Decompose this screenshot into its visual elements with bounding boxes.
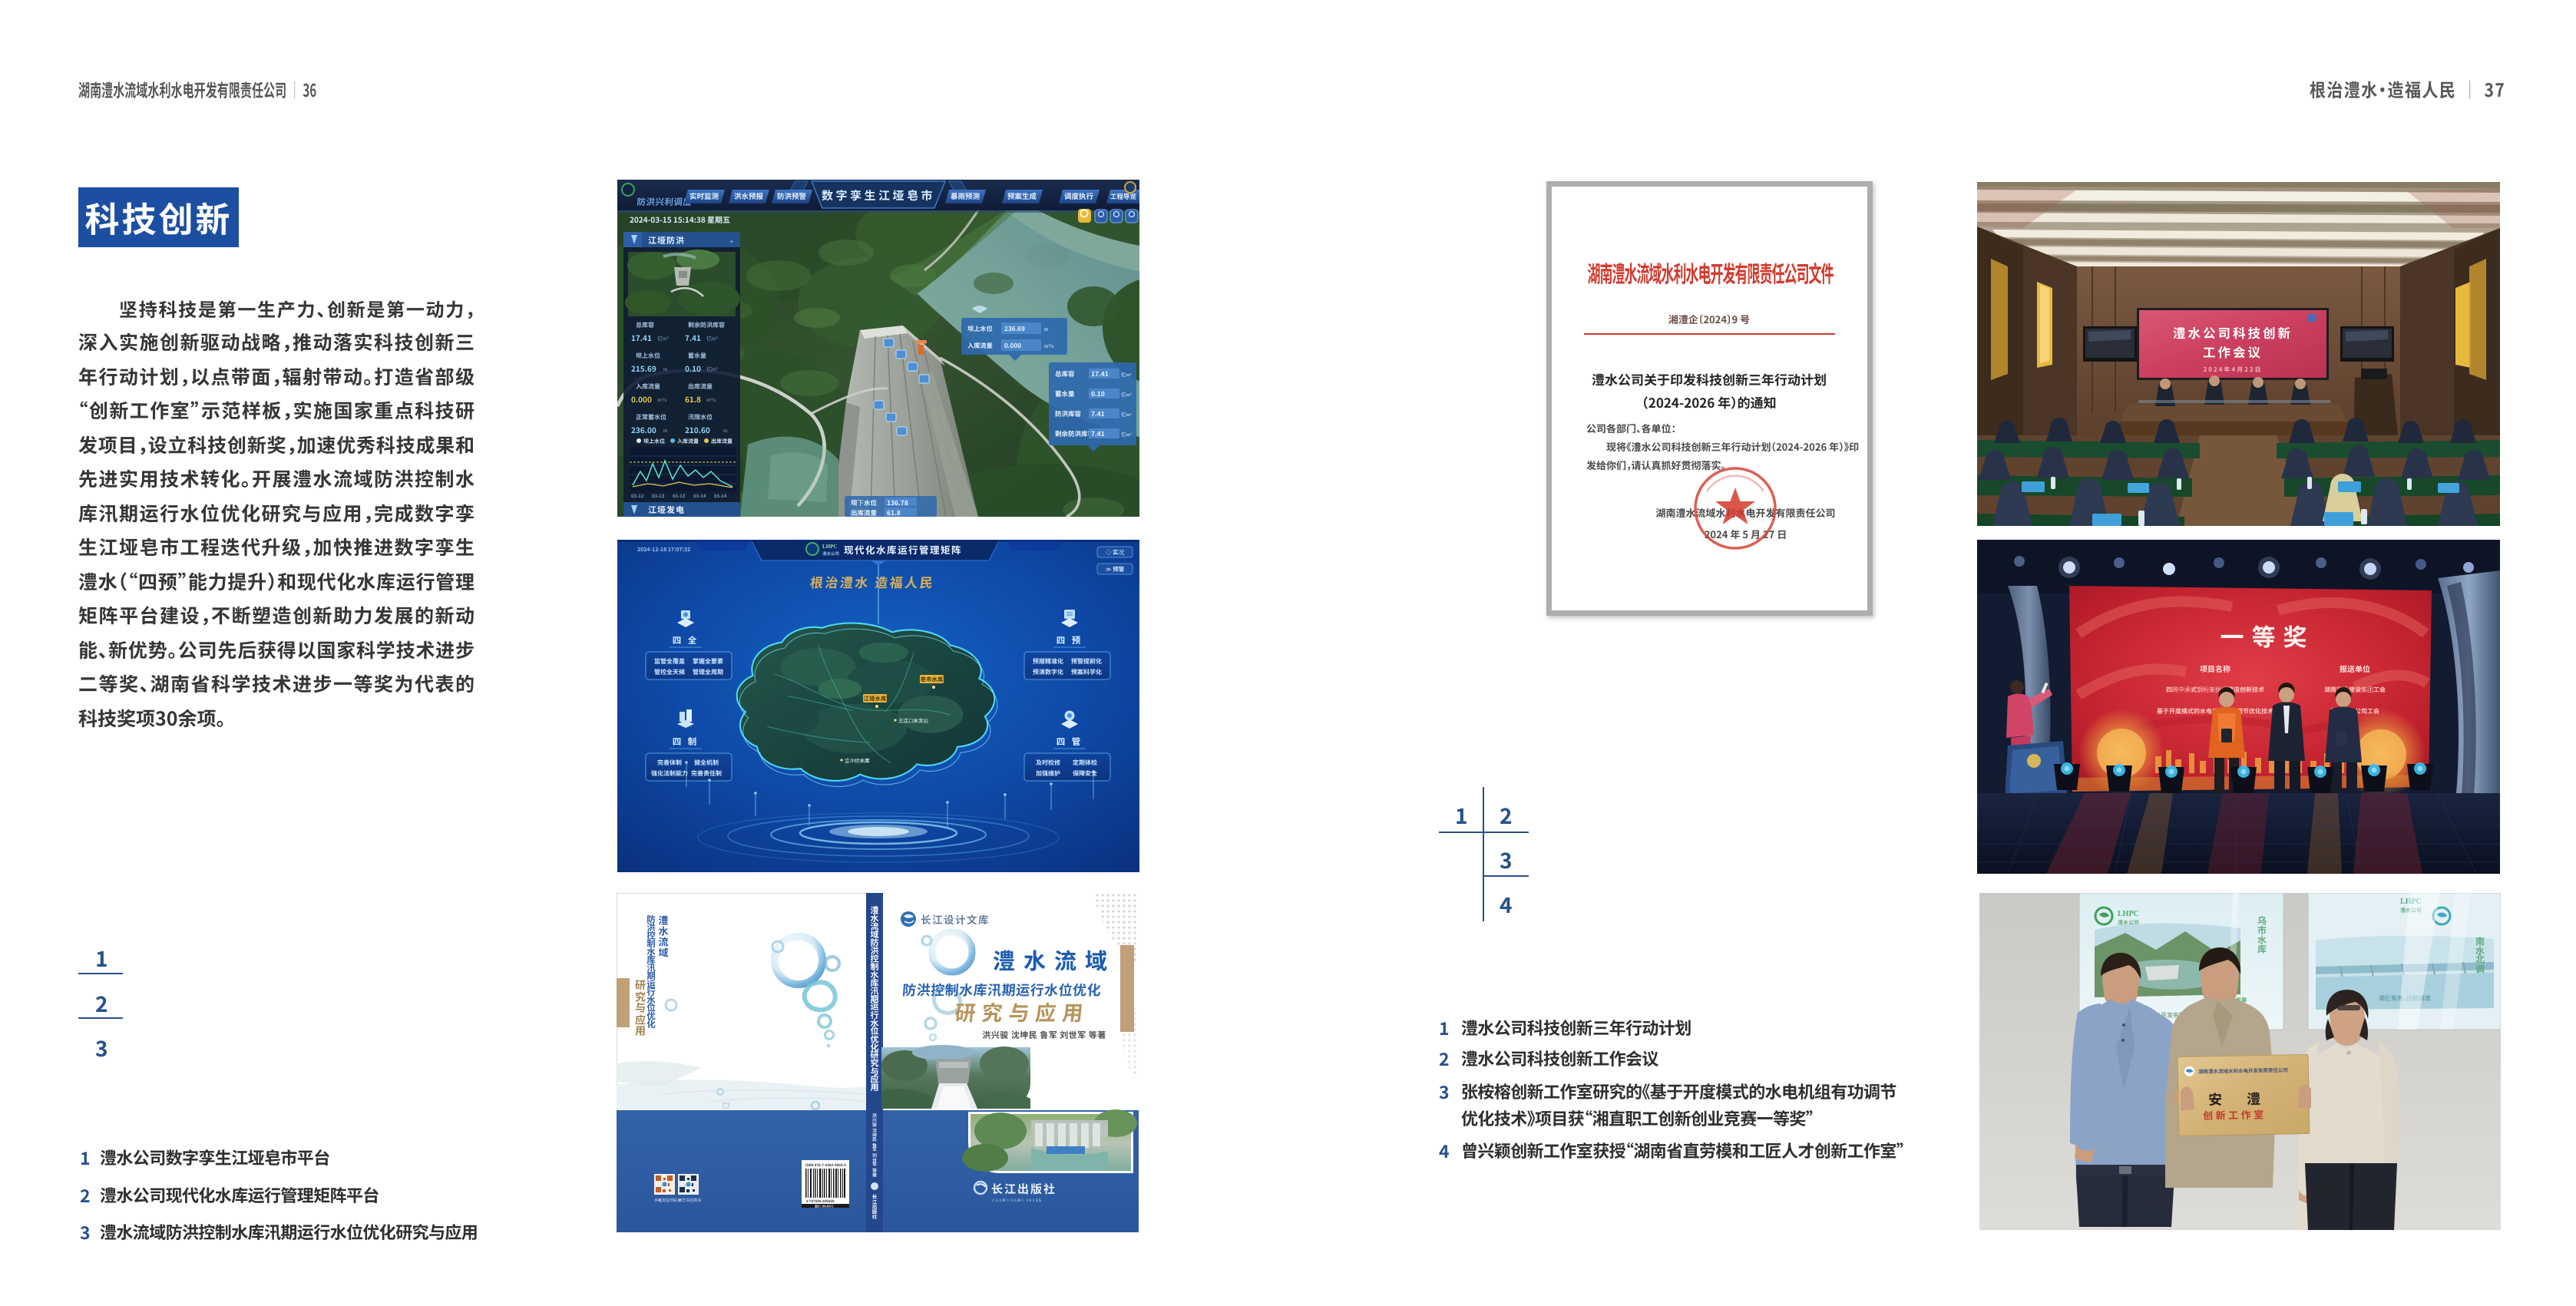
svg-text:监管全覆盖: 监管全覆盖 xyxy=(654,657,685,666)
svg-text:m: m xyxy=(723,427,728,435)
svg-text:215.69: 215.69 xyxy=(631,362,656,374)
svg-text:手机淘宝扫码 新华书店购书: 手机淘宝扫码 新华书店购书 xyxy=(654,1198,701,1203)
svg-text:出库流量: 出库流量 xyxy=(851,508,878,517)
svg-text:强化法制能力: 强化法制能力 xyxy=(651,769,688,778)
svg-text:防洪库容: 防洪库容 xyxy=(1055,409,1082,418)
svg-text:创新工作室: 创新工作室 xyxy=(2203,1106,2267,1122)
svg-text:四 全: 四 全 xyxy=(673,634,699,646)
svg-text:亿m³: 亿m³ xyxy=(1121,370,1132,378)
svg-text:澧水流域: 澧水流域 xyxy=(656,914,671,957)
svg-text:长江设计文库: 长江设计文库 xyxy=(921,911,990,927)
svg-text:剩余防洪库容: 剩余防洪库容 xyxy=(688,321,725,329)
svg-text:亿m³: 亿m³ xyxy=(1121,390,1132,398)
svg-text:136.78: 136.78 xyxy=(887,498,908,508)
svg-text:剩余防洪库容: 剩余防洪库容 xyxy=(1055,429,1095,438)
svg-text:入库流量: 入库流量 xyxy=(677,438,699,445)
svg-text:7.41: 7.41 xyxy=(1091,409,1105,418)
svg-text:总库容: 总库容 xyxy=(636,321,654,329)
svg-text:2024-12-18 17:07:32: 2024-12-18 17:07:32 xyxy=(637,546,690,554)
svg-text:暴雨预测: 暴雨预测 xyxy=(951,190,980,201)
svg-text:澧水公司: 澧水公司 xyxy=(822,551,839,557)
svg-text:出库流量: 出库流量 xyxy=(711,438,732,445)
svg-text:236.00: 236.00 xyxy=(631,424,656,435)
svg-text:出库流量: 出库流量 xyxy=(688,382,713,391)
svg-text:CHANGJIANG PRESS: CHANGJIANG PRESS xyxy=(992,1198,1042,1203)
svg-text:实时监测: 实时监测 xyxy=(689,190,719,201)
svg-text:03-13: 03-13 xyxy=(652,492,665,499)
svg-text:防洪预警: 防洪预警 xyxy=(777,190,807,201)
svg-text:入库流量: 入库流量 xyxy=(636,382,660,391)
svg-text:亿m³: 亿m³ xyxy=(706,335,718,342)
svg-text:工作会议: 工作会议 xyxy=(2203,342,2263,361)
svg-text:m³/s: m³/s xyxy=(657,396,666,404)
svg-text:加强维护: 加强维护 xyxy=(1036,769,1060,778)
svg-text:◇ 实况: ◇ 实况 xyxy=(1106,548,1125,557)
svg-text:亿m³: 亿m³ xyxy=(1121,410,1132,418)
svg-text:项目名称: 项目名称 xyxy=(2200,663,2230,674)
svg-text:正常蓄水位: 正常蓄水位 xyxy=(636,413,666,422)
svg-text:总库容: 总库容 xyxy=(1055,369,1075,379)
svg-text:LHPC: LHPC xyxy=(822,543,837,551)
svg-text:7.41: 7.41 xyxy=(1091,429,1105,438)
svg-text:数字孪生江垭皂市: 数字孪生江垭皂市 xyxy=(822,187,935,203)
svg-text:亿m³: 亿m³ xyxy=(1121,430,1132,438)
svg-text:澧: 澧 xyxy=(2247,1089,2260,1109)
svg-text:预警提前化: 预警提前化 xyxy=(1071,657,1102,666)
svg-text:+: + xyxy=(729,235,734,247)
svg-text:210.60: 210.60 xyxy=(685,424,710,435)
svg-text:61.8: 61.8 xyxy=(685,393,701,405)
svg-text:定价：98.00元: 定价：98.00元 xyxy=(815,1205,834,1209)
svg-text:坝上水位: 坝上水位 xyxy=(643,438,665,445)
svg-text:调度执行: 调度执行 xyxy=(1064,190,1094,201)
svg-text:一等奖: 一等奖 xyxy=(2221,618,2315,653)
svg-text:m: m xyxy=(663,365,668,373)
svg-text:完善体制: 完善体制 xyxy=(657,759,682,767)
svg-text:0.10: 0.10 xyxy=(685,362,701,374)
svg-text:预案科学化: 预案科学化 xyxy=(1071,668,1102,676)
svg-text:完善责任制: 完善责任制 xyxy=(691,769,722,778)
svg-text:17.41: 17.41 xyxy=(631,332,652,343)
svg-text:湖南澧水流域水利水电开发有限责任公司: 湖南澧水流域水利水电开发有限责任公司 xyxy=(2198,1066,2288,1075)
svg-text:236.69: 236.69 xyxy=(1004,324,1025,333)
svg-text:江垭发电: 江垭发电 xyxy=(648,504,685,516)
svg-text:0.000: 0.000 xyxy=(1004,341,1021,350)
svg-text:管控全天候: 管控全天候 xyxy=(654,668,685,676)
svg-text:61.8: 61.8 xyxy=(887,508,901,517)
svg-text:澧水流域: 澧水流域 xyxy=(993,944,1116,976)
svg-text:研究与应用: 研究与应用 xyxy=(954,997,1091,1027)
svg-text:03-14: 03-14 xyxy=(693,492,706,499)
svg-text:安: 安 xyxy=(2208,1089,2222,1109)
svg-text:三江口水文站: 三江口水文站 xyxy=(898,716,929,724)
svg-text:现代化水库运行管理矩阵: 现代化水库运行管理矩阵 xyxy=(844,542,962,557)
svg-text:澧水公司科技创新: 澧水公司科技创新 xyxy=(2173,323,2293,342)
svg-text:及时检修: 及时检修 xyxy=(1036,759,1060,767)
svg-text:9 787549 295659: 9 787549 295659 xyxy=(806,1199,835,1204)
svg-text:m: m xyxy=(1044,326,1049,333)
svg-text:管理全周期: 管理全周期 xyxy=(693,668,723,676)
svg-text:坝上水位: 坝上水位 xyxy=(636,352,660,360)
svg-text:2024-03-15 15:14:38 星期五: 2024-03-15 15:14:38 星期五 xyxy=(630,213,730,225)
svg-text:≫ 预警: ≫ 预警 xyxy=(1106,565,1125,574)
svg-text:LHPC: LHPC xyxy=(2118,907,2139,918)
svg-text:江垭防洪: 江垭防洪 xyxy=(648,234,685,246)
svg-text:洪水预报: 洪水预报 xyxy=(734,190,764,201)
svg-text:ISBN 978-7-5492-9565-9: ISBN 978-7-5492-9565-9 xyxy=(805,1163,846,1168)
svg-text:m: m xyxy=(663,427,668,435)
svg-text:17.41: 17.41 xyxy=(1091,369,1109,379)
svg-text:m³/s: m³/s xyxy=(1044,342,1053,350)
svg-text:0.000: 0.000 xyxy=(631,393,652,405)
svg-text:03-12: 03-12 xyxy=(631,492,644,499)
svg-text:0.10: 0.10 xyxy=(1091,389,1105,398)
svg-text:防洪兴利调度: 防洪兴利调度 xyxy=(637,196,693,208)
svg-text:长江出版社: 长江出版社 xyxy=(871,1194,878,1219)
svg-text:预案生成: 预案生成 xyxy=(1007,190,1037,201)
svg-text:报送单位: 报送单位 xyxy=(2340,663,2370,674)
svg-text:根治澧水 造福人民: 根治澧水 造福人民 xyxy=(809,572,936,591)
svg-text:2024年4月23日: 2024年4月23日 xyxy=(2203,365,2262,374)
svg-text:掌握全要素: 掌握全要素 xyxy=(693,657,723,666)
svg-text:预演数字化: 预演数字化 xyxy=(1033,668,1063,676)
svg-text:洪兴骏 沈坤民 鲁军 刘世军 等著: 洪兴骏 沈坤民 鲁军 刘世军 等著 xyxy=(871,1113,878,1178)
svg-text:江垭水库: 江垭水库 xyxy=(864,695,887,703)
svg-text:坝下水位: 坝下水位 xyxy=(851,498,878,508)
svg-text:定期体检: 定期体检 xyxy=(1073,759,1097,767)
svg-text:03-14: 03-14 xyxy=(714,492,727,499)
svg-text:坝上水位: 坝上水位 xyxy=(967,324,993,333)
svg-text:湖南路桥建设集团工会: 湖南路桥建设集团工会 xyxy=(2324,686,2386,694)
svg-text:南水北调: 南水北调 xyxy=(2474,936,2487,974)
svg-text:四跨中承式钢桁架拱桥建造创新技术: 四跨中承式钢桁架拱桥建造创新技术 xyxy=(2166,686,2264,694)
svg-text:汛限水位: 汛限水位 xyxy=(688,413,713,422)
svg-text:预报精准化: 预报精准化 xyxy=(1033,657,1063,666)
svg-text:乌市水库: 乌市水库 xyxy=(2256,915,2269,954)
svg-text:研究与应用: 研究与应用 xyxy=(633,979,648,1037)
svg-text:7.41: 7.41 xyxy=(685,332,701,343)
svg-text:入库流量: 入库流量 xyxy=(967,341,993,350)
svg-text:m³/s: m³/s xyxy=(706,396,716,404)
svg-text:健全机制: 健全机制 xyxy=(694,759,719,767)
svg-text:工程导览: 工程导览 xyxy=(1110,192,1137,201)
svg-text:四 制: 四 制 xyxy=(673,736,699,748)
svg-text:蓄水量: 蓄水量 xyxy=(1055,389,1075,398)
svg-text:四 管: 四 管 xyxy=(1057,736,1083,748)
svg-text:亿m³: 亿m³ xyxy=(657,335,669,342)
svg-text:亿m³: 亿m³ xyxy=(706,365,718,373)
svg-text:四 预: 四 预 xyxy=(1057,634,1083,646)
svg-text:03-13: 03-13 xyxy=(673,492,686,499)
svg-text:皂市水库: 皂市水库 xyxy=(921,676,944,684)
svg-text:蓄水量: 蓄水量 xyxy=(688,352,706,360)
svg-text:宜冲桥水库: 宜冲桥水库 xyxy=(845,756,870,764)
svg-text:长江出版社: 长江出版社 xyxy=(991,1181,1057,1197)
svg-text:澧水流域防洪控制水库汛期运行水位优化研究与应用: 澧水流域防洪控制水库汛期运行水位优化研究与应用 xyxy=(868,905,881,1092)
svg-text:洪兴骏 沈坤民 鲁军 刘世军 等著: 洪兴骏 沈坤民 鲁军 刘世军 等著 xyxy=(982,1029,1106,1041)
